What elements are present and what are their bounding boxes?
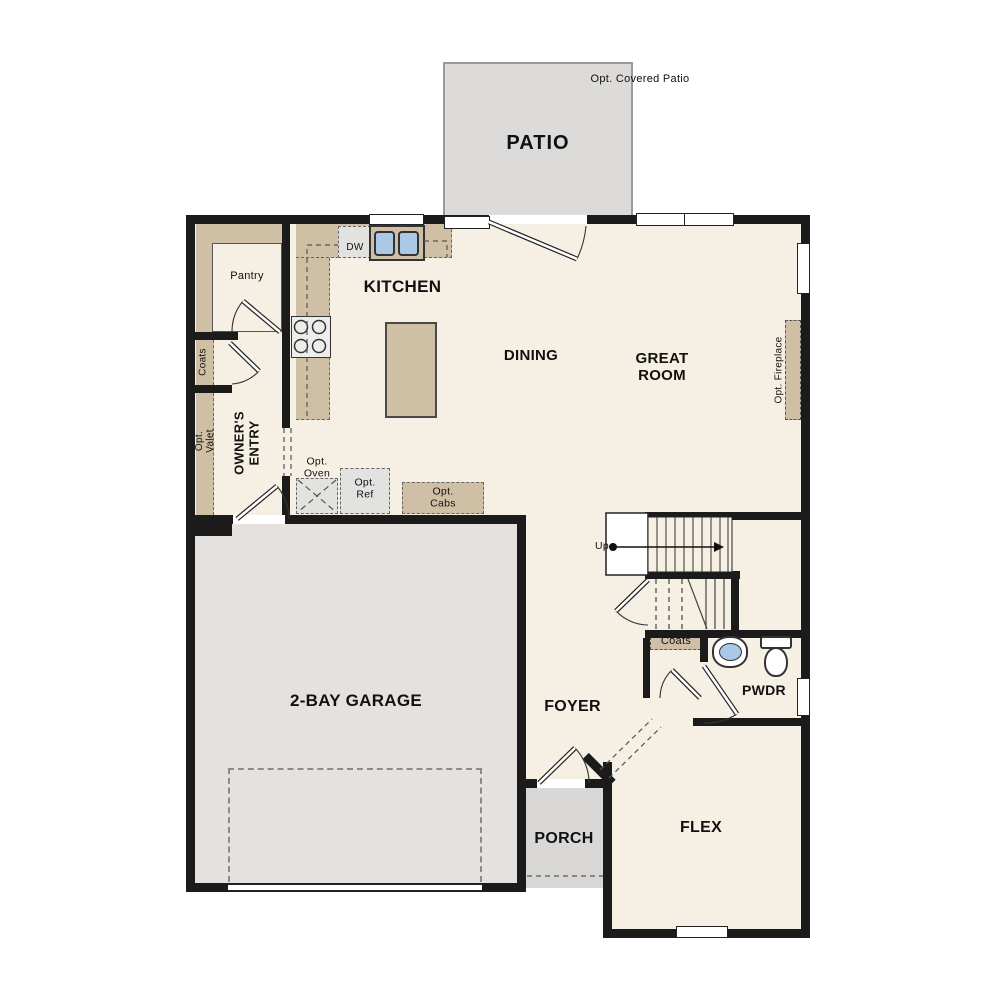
coats-stairs-label: Coats xyxy=(651,635,701,647)
kitchen-window xyxy=(369,214,424,225)
great-room-window-left xyxy=(636,213,685,226)
wall-coats-bottom xyxy=(186,385,232,393)
coats-entry-label: Coats xyxy=(197,340,208,384)
pwdr-label: PWDR xyxy=(735,683,793,699)
opt-oven-box xyxy=(296,478,338,514)
patio-note-label: Opt. Covered Patio xyxy=(540,73,740,85)
garage-entry-opening xyxy=(233,515,285,524)
kitchen-island xyxy=(385,322,437,418)
dishwasher-label: DW xyxy=(340,242,370,253)
wall-oe-right-upper xyxy=(282,340,290,428)
wall-stairs-top xyxy=(645,512,801,520)
kitchen-counter-right xyxy=(424,224,452,258)
garage-door-zone xyxy=(228,768,482,882)
patio-label: PATIO xyxy=(448,132,628,154)
sink-basin-left xyxy=(374,231,395,256)
great-room-label: GREAT ROOM xyxy=(620,351,704,385)
patio-door-panel xyxy=(444,216,490,229)
floor-plan: Opt. Covered Patio PATIO Pantry KITCHEN … xyxy=(0,0,1000,1000)
stove xyxy=(291,316,331,358)
flex-window xyxy=(676,926,728,938)
wall-pwdr-left-stub xyxy=(700,638,708,662)
opt-oven-label: Opt. Oven xyxy=(300,456,334,480)
wall-flex-left xyxy=(603,762,612,938)
wall-pantry-right xyxy=(282,215,290,340)
porch-label: PORCH xyxy=(524,830,604,848)
foyer-label: FOYER xyxy=(520,698,625,716)
pwdr-window xyxy=(797,678,810,716)
wall-stairs-mid xyxy=(645,571,740,579)
front-door-opening xyxy=(537,779,585,788)
wall-left xyxy=(186,215,195,892)
toilet-bowl xyxy=(764,647,788,677)
opt-cabs-label: Opt. Cabs xyxy=(426,486,460,510)
opt-valet-label: Opt. Valet xyxy=(194,424,216,458)
wall-pantry-bottom xyxy=(186,332,238,340)
patio-door-opening xyxy=(489,215,587,224)
stairs-up-label: Up xyxy=(583,541,609,553)
great-room-side-window xyxy=(797,243,810,294)
wall-kitchen-bottom-a xyxy=(186,515,233,524)
pantry-inner xyxy=(212,243,282,332)
wall-right xyxy=(801,215,810,938)
pantry-label: Pantry xyxy=(212,270,282,282)
flex-label: FLEX xyxy=(661,819,741,837)
wall-coats2-left xyxy=(643,638,650,698)
garage-door-opening xyxy=(228,883,482,892)
dining-label: DINING xyxy=(486,348,576,365)
opt-fireplace-box xyxy=(785,320,801,420)
opt-fireplace-label: Opt. Fireplace xyxy=(773,330,784,410)
wall-pwdr-bottom xyxy=(693,718,801,726)
pwdr-sink-bowl xyxy=(719,643,742,661)
sink-basin-right xyxy=(398,231,419,256)
garage-step xyxy=(192,524,232,536)
owners-entry-label: OWNER'S ENTRY xyxy=(232,400,261,486)
wall-kitchen-bottom-b xyxy=(285,515,526,524)
kitchen-label: KITCHEN xyxy=(330,277,475,296)
great-room-window-right xyxy=(684,213,734,226)
garage-label: 2-BAY GARAGE xyxy=(276,691,436,710)
opt-ref-label: Opt. Ref xyxy=(350,477,380,501)
wall-porch-top-a xyxy=(517,779,537,788)
wall-stairs-right xyxy=(731,571,739,638)
